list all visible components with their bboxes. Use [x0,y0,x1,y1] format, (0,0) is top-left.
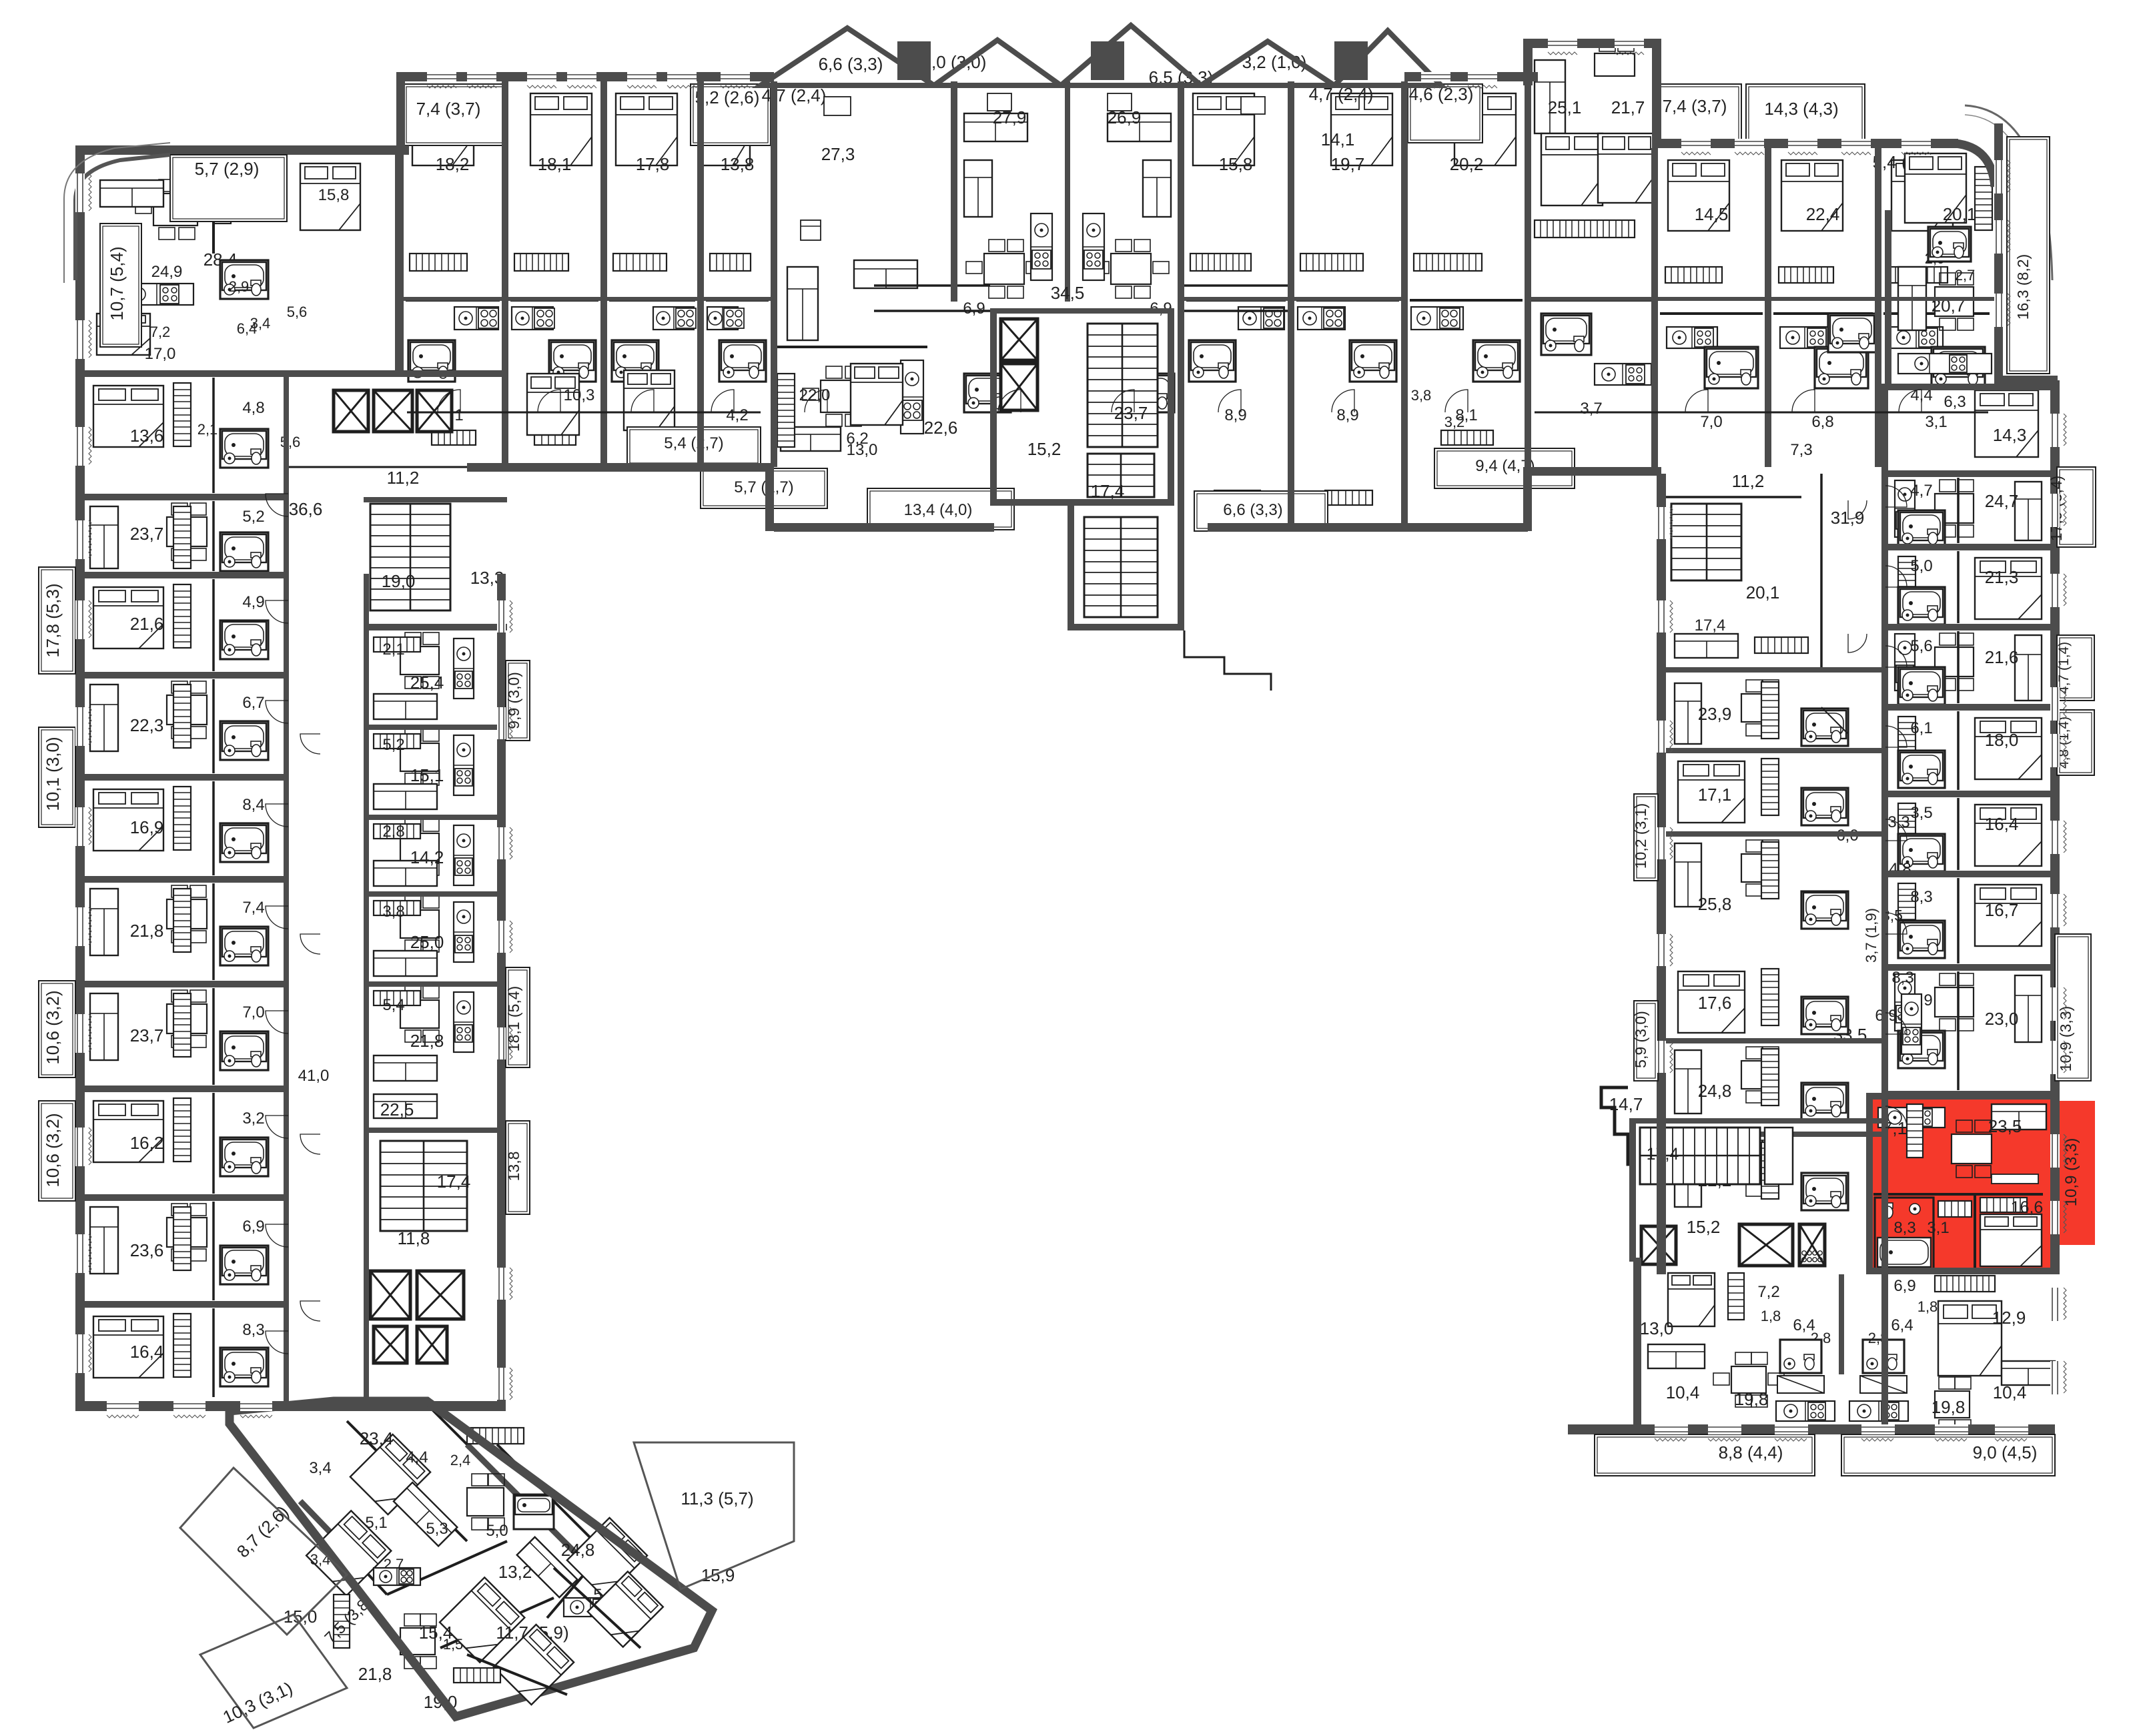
svg-text:12,9: 12,9 [1992,1308,2026,1328]
svg-text:21,8: 21,8 [410,1031,444,1051]
svg-text:1,8: 1,8 [1917,1298,1938,1315]
svg-text:17,4: 17,4 [437,1172,471,1192]
svg-text:17,4: 17,4 [1091,481,1125,501]
svg-text:3,7: 3,7 [1580,400,1602,418]
svg-text:8,9: 8,9 [1336,406,1358,424]
svg-text:1,5: 1,5 [443,1636,464,1653]
svg-text:21,6: 21,6 [1985,647,2019,667]
svg-text:13,4 (4,0): 13,4 (4,0) [904,501,973,519]
svg-text:6,2: 6,2 [846,430,868,448]
svg-text:9,9 (3,0): 9,9 (3,0) [505,672,522,729]
svg-text:16,3 (8,2): 16,3 (8,2) [2014,254,2032,320]
svg-text:23,0: 23,0 [1985,1009,2019,1029]
svg-text:22,5: 22,5 [380,1100,414,1120]
svg-text:25,0: 25,0 [410,932,444,952]
svg-text:5,0: 5,0 [486,1522,508,1540]
svg-text:13,6: 13,6 [130,426,164,446]
svg-text:24,9: 24,9 [151,263,183,281]
svg-text:18,1 (5,4): 18,1 (5,4) [505,986,522,1051]
svg-text:23,7: 23,7 [130,1025,164,1045]
svg-text:16,9: 16,9 [130,817,164,837]
svg-text:3,2: 3,2 [1444,414,1465,430]
svg-text:13,2: 13,2 [498,1562,532,1582]
svg-text:6,9: 6,9 [1893,1277,1915,1295]
svg-text:19,0: 19,0 [382,571,416,591]
svg-text:3,8: 3,8 [1411,387,1432,404]
svg-text:8,9: 8,9 [1224,406,1246,424]
svg-text:22,0: 22,0 [799,386,831,404]
svg-text:10,4: 10,4 [1993,1382,2027,1402]
svg-text:2,9: 2,9 [229,278,250,295]
svg-text:19,8: 19,8 [1735,1389,1769,1409]
svg-text:31,9: 31,9 [1831,508,1865,528]
svg-text:16,6: 16,6 [2011,1198,2044,1217]
svg-text:6,1: 6,1 [1910,719,1932,737]
svg-text:23,9: 23,9 [1698,704,1732,724]
svg-text:17,4: 17,4 [1695,616,1726,634]
svg-text:22,3: 22,3 [130,715,164,735]
svg-text:21,8: 21,8 [358,1664,392,1684]
svg-text:7,4: 7,4 [242,899,264,917]
svg-text:8,4: 8,4 [242,796,264,814]
svg-text:23,6: 23,6 [130,1240,164,1260]
svg-text:8,8 (4,4): 8,8 (4,4) [1719,1442,1783,1462]
svg-text:6,3: 6,3 [1944,393,1966,411]
svg-text:5,4: 5,4 [382,996,404,1014]
svg-text:6,9: 6,9 [242,1218,264,1236]
svg-text:24,8: 24,8 [561,1540,595,1560]
svg-text:41,0: 41,0 [298,1067,330,1085]
svg-text:25,1: 25,1 [1548,97,1582,117]
svg-text:5,6: 5,6 [1910,637,1932,655]
svg-text:5,2: 5,2 [382,736,404,754]
svg-text:4,4: 4,4 [406,1448,428,1466]
svg-text:23,7: 23,7 [1114,403,1148,423]
svg-text:6,6 (3,3): 6,6 (3,3) [1223,501,1282,519]
svg-text:27,3: 27,3 [821,144,855,164]
svg-text:9,0 (4,5): 9,0 (4,5) [1973,1442,2038,1462]
svg-text:2,8: 2,8 [382,823,404,841]
svg-text:4,7: 4,7 [1910,482,1932,500]
svg-text:3,1: 3,1 [1925,413,1947,431]
svg-text:5,6: 5,6 [280,434,301,450]
svg-text:8,3: 8,3 [1893,1219,1915,1237]
svg-text:24,8: 24,8 [1698,1081,1732,1101]
svg-text:7,0: 7,0 [1700,413,1722,431]
svg-text:8,3: 8,3 [1891,969,1913,987]
svg-text:17,8: 17,8 [636,154,670,174]
svg-text:3,8: 3,8 [382,903,404,921]
svg-text:6,4: 6,4 [1891,1316,1913,1334]
svg-text:18,2: 18,2 [436,154,470,174]
svg-text:3,4: 3,4 [309,1459,331,1477]
svg-text:7,3: 7,3 [1790,441,1812,459]
svg-text:17,8 (5,3): 17,8 (5,3) [43,583,63,657]
svg-text:7,0: 7,0 [242,1003,264,1021]
svg-text:15,8: 15,8 [1219,154,1253,174]
svg-text:25,8: 25,8 [1698,894,1732,914]
svg-text:5,4 (2,7): 5,4 (2,7) [664,434,723,452]
svg-text:21,3: 21,3 [1985,567,2019,587]
svg-text:23,4: 23,4 [360,1428,394,1448]
svg-text:16,4: 16,4 [1985,814,2019,834]
svg-text:24,7: 24,7 [1985,491,2019,511]
svg-text:23,7: 23,7 [130,524,164,544]
svg-text:4,2: 4,2 [726,406,748,424]
svg-text:13,8: 13,8 [505,1152,522,1182]
svg-text:11,3 (5,7): 11,3 (5,7) [681,1488,753,1508]
svg-text:16,4: 16,4 [130,1342,164,1362]
svg-text:14,1: 14,1 [1321,129,1355,149]
svg-text:5,7 (2,9): 5,7 (2,9) [195,159,260,179]
svg-text:3,1: 3,1 [1927,1219,1949,1237]
svg-text:20,2: 20,2 [1450,154,1484,174]
svg-text:7,4 (3,7): 7,4 (3,7) [416,99,481,119]
svg-text:13,8: 13,8 [721,154,755,174]
svg-text:7,4 (3,7): 7,4 (3,7) [1663,96,1727,116]
svg-text:21,6: 21,6 [130,614,164,634]
svg-text:5,0: 5,0 [1910,557,1932,575]
svg-text:14,5: 14,5 [1695,204,1729,224]
svg-text:10,3: 10,3 [564,386,595,404]
svg-text:5,6: 5,6 [287,304,308,320]
svg-text:17,1: 17,1 [1698,785,1732,805]
svg-text:6,6 (3,3): 6,6 (3,3) [819,54,883,74]
svg-text:3,4: 3,4 [250,315,271,332]
svg-text:3,5: 3,5 [1910,804,1932,822]
svg-text:6,9: 6,9 [963,300,985,318]
svg-text:4,9: 4,9 [242,593,264,611]
svg-text:5,7 (1,7): 5,7 (1,7) [734,478,793,496]
svg-text:2,1: 2,1 [382,640,404,659]
svg-text:14,3: 14,3 [1993,425,2027,445]
svg-text:22,6: 22,6 [924,418,958,438]
svg-text:3,2: 3,2 [242,1110,264,1128]
svg-text:23,5: 23,5 [1988,1116,2022,1136]
svg-text:4,7 (1,4): 4,7 (1,4) [2056,642,2072,694]
svg-text:15,2: 15,2 [1687,1217,1721,1237]
svg-text:1,8: 1,8 [1761,1308,1781,1324]
svg-text:36,6: 36,6 [289,499,323,519]
svg-text:5,9 (3,0): 5,9 (3,0) [1632,1011,1649,1068]
svg-text:10,7 (5,4): 10,7 (5,4) [107,246,127,320]
svg-text:18,0: 18,0 [1985,730,2019,750]
svg-text:25,4: 25,4 [410,673,444,693]
svg-text:20,1: 20,1 [1746,582,1780,602]
svg-text:15,8: 15,8 [318,186,350,204]
svg-text:2,4: 2,4 [450,1452,471,1468]
svg-text:21,8: 21,8 [130,921,164,941]
svg-text:8,3: 8,3 [1910,888,1932,906]
svg-text:10,2 (3,1): 10,2 (3,1) [1632,803,1649,869]
svg-text:18,1: 18,1 [538,154,572,174]
svg-text:17,6: 17,6 [1698,993,1732,1013]
svg-text:10,9 (3,3): 10,9 (3,3) [2062,1138,2080,1207]
svg-text:3,7 (1,9): 3,7 (1,9) [1863,908,1879,963]
svg-text:10,4: 10,4 [1666,1382,1700,1402]
svg-text:22,4: 22,4 [1806,204,1840,224]
svg-text:5,2 (2,6): 5,2 (2,6) [695,87,760,107]
svg-text:7,2: 7,2 [150,324,171,340]
svg-text:15,1: 15,1 [410,765,444,785]
svg-text:14,2: 14,2 [410,847,444,867]
svg-text:7,2: 7,2 [1757,1283,1779,1301]
svg-text:17,0: 17,0 [145,345,176,363]
svg-text:21,7: 21,7 [1611,97,1645,117]
svg-text:20,1: 20,1 [1943,204,1977,224]
svg-text:10,1 (3,0): 10,1 (3,0) [43,737,63,811]
svg-text:10,6 (3,2): 10,6 (3,2) [43,990,63,1064]
svg-text:5,1: 5,1 [365,1514,387,1532]
svg-text:16,2: 16,2 [130,1133,164,1153]
svg-text:10,6 (3,2): 10,6 (3,2) [43,1113,63,1187]
svg-text:19,7: 19,7 [1331,154,1365,174]
svg-text:13,0: 13,0 [1640,1318,1674,1338]
svg-text:4,8: 4,8 [242,399,264,417]
svg-text:2,1: 2,1 [197,421,218,438]
svg-text:6,7: 6,7 [242,694,264,712]
svg-text:11,8: 11,8 [398,1228,430,1248]
svg-text:14,3 (4,3): 14,3 (4,3) [1764,99,1838,119]
svg-text:5,2: 5,2 [242,508,264,526]
svg-text:8,3: 8,3 [242,1321,264,1339]
svg-text:34,5: 34,5 [1051,283,1085,303]
svg-text:3,3: 3,3 [1887,813,1909,831]
svg-text:5,3: 5,3 [426,1520,448,1538]
svg-text:11,2: 11,2 [387,468,420,488]
svg-text:15,2: 15,2 [1027,439,1061,459]
svg-text:19,8: 19,8 [1932,1397,1966,1417]
svg-text:11,2: 11,2 [1732,471,1765,491]
svg-text:6,8: 6,8 [1811,413,1833,431]
svg-text:16,7: 16,7 [1985,900,2019,920]
